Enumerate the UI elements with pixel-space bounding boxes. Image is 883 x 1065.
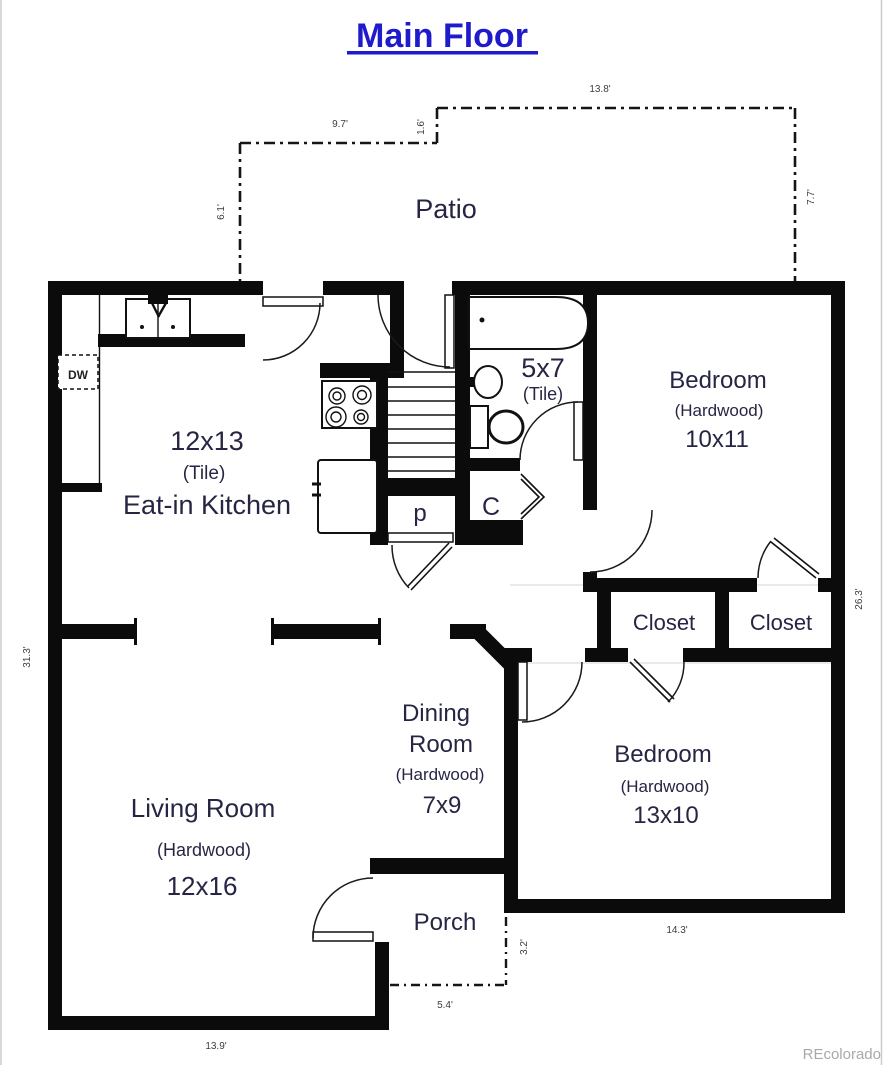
bedroom2-name-label: Bedroom [614, 741, 711, 768]
wall-cap-1 [134, 618, 137, 645]
dim-patio-left: 6.1' [216, 204, 227, 220]
living-floor-label: (Hardwood) [157, 840, 251, 860]
watermark: REcolorado [803, 1046, 881, 1063]
wall-top-a [48, 281, 263, 295]
wall-bedroom2-top-b [585, 648, 628, 662]
bathroom-sink [474, 366, 502, 398]
wall-bath-left [455, 295, 470, 545]
dim-patio-top: 13.8' [589, 84, 610, 95]
dim-left-side: 31.3' [22, 646, 33, 667]
dining-floor-label: (Hardwood) [396, 765, 485, 784]
title-underline [347, 51, 538, 55]
wall-bedroom1-bottom-a [583, 578, 757, 592]
wall-stub-a [48, 624, 137, 639]
bathroom-sink-tap [468, 377, 474, 387]
hall-closet-bifold-inner [521, 479, 539, 514]
bedroom2-door-panel [518, 662, 527, 720]
closet-right-label: Closet [750, 610, 812, 635]
toilet-bowl [489, 411, 523, 443]
dining-size-label: 7x9 [423, 792, 462, 819]
bathtub [469, 297, 588, 349]
wall-bath-south [455, 458, 520, 471]
wall-left [48, 281, 62, 1030]
front-door-arc [313, 878, 373, 938]
kitchen-sink [126, 294, 190, 338]
closet2-door-arc [758, 541, 771, 578]
wall-bedroom2-bottom [504, 899, 845, 913]
kitchen-patio-door-panel [263, 297, 323, 306]
kitchen-patio-door-arc [263, 303, 320, 360]
pantry-opening-casing [388, 533, 453, 542]
dim-porch-width: 5.4' [437, 1000, 453, 1011]
front-door-panel [313, 932, 373, 941]
closet2-door-panel-b [774, 538, 819, 574]
dim-porch-depth: 3.2' [519, 939, 530, 955]
closet2-door-panel-a [771, 542, 816, 578]
wall-stove-back [320, 363, 404, 378]
sink-drain-left [140, 325, 144, 329]
wall-stairs-bottom [388, 478, 455, 496]
dim-patio-right: 7.7' [806, 189, 817, 205]
pantry-door-panel-a [408, 543, 449, 586]
wall-top-c [452, 281, 845, 295]
wall-stub-b [273, 624, 380, 639]
kitchen-name-label: Eat-in Kitchen [123, 490, 291, 520]
hall-closet-bifold-outer [521, 474, 544, 519]
pantry-door-panel-b [411, 547, 452, 590]
wall-right [831, 281, 845, 913]
dim-living-width: 13.9' [205, 1041, 226, 1052]
stove [322, 381, 377, 428]
bedroom1-name-label: Bedroom [669, 367, 766, 394]
dining-line1-label: Dining [402, 700, 470, 727]
wall-landing-left [390, 281, 404, 375]
toilet-tank [470, 406, 488, 448]
dim-patio-upper-left: 9.7' [332, 119, 348, 130]
wall-bedroom2-left [504, 662, 518, 913]
bedroom1-size-label: 10x11 [685, 426, 749, 453]
bedroom2-floor-label: (Hardwood) [621, 777, 710, 796]
bedroom1-floor-label: (Hardwood) [675, 401, 764, 420]
wall-closets-bottom [683, 648, 845, 662]
hall-closet-label: C [482, 493, 500, 521]
dim-patio-jog: 1.6' [416, 119, 427, 135]
wall-bottom-living [48, 1016, 389, 1030]
wall-porch-left [375, 942, 389, 1016]
patio-outline [240, 108, 795, 281]
dim-right-side: 26.3' [854, 588, 865, 609]
dishwasher-label: DW [68, 368, 89, 382]
sink-drain-right [171, 325, 175, 329]
refrigerator-outline [318, 460, 377, 533]
bathroom-door-arc [520, 402, 578, 460]
closet1-door-panel-a [630, 662, 670, 702]
hall-patio-door-panel [445, 295, 454, 368]
counter-left-end [60, 483, 102, 492]
bedroom2-door-arc [522, 662, 582, 722]
bathtub-drain [480, 318, 485, 323]
bathroom-size-label: 5x7 [521, 353, 565, 383]
bathroom-door-panel [574, 402, 583, 460]
kitchen-size-label: 12x13 [170, 426, 244, 456]
porch-label: Porch [414, 909, 477, 936]
floor-plan-drawing: Main Floor [0, 0, 883, 1065]
bedroom2-size-label: 13x10 [633, 802, 698, 829]
pantry-label: p [413, 500, 426, 527]
bathroom-floor-label: (Tile) [523, 384, 563, 404]
refrigerator [312, 460, 377, 533]
living-name-label: Living Room [131, 793, 276, 823]
wall-cap-3 [378, 618, 381, 645]
living-size-label: 12x16 [167, 871, 238, 901]
dim-bedroom2-width: 14.3' [666, 925, 687, 936]
floor-plan-page: Main Floor [0, 0, 883, 1065]
closet-left-label: Closet [633, 610, 695, 635]
stairs [388, 372, 455, 471]
kitchen-floor-label: (Tile) [183, 463, 226, 484]
closet1-door-panel-b [634, 659, 674, 699]
wall-dining-bottom [370, 858, 518, 874]
wall-hall-closet-bottom [455, 520, 523, 545]
page-title: Main Floor [356, 17, 528, 55]
hall-patio-door-arc [378, 295, 450, 367]
patio-label: Patio [415, 194, 477, 224]
dining-line2-label: Room [409, 731, 473, 758]
wall-bedroom1-bottom-b [818, 578, 845, 592]
bedroom1-door-arc [590, 510, 652, 572]
pantry-door-arc [392, 545, 409, 588]
wall-cap-2 [271, 618, 274, 645]
